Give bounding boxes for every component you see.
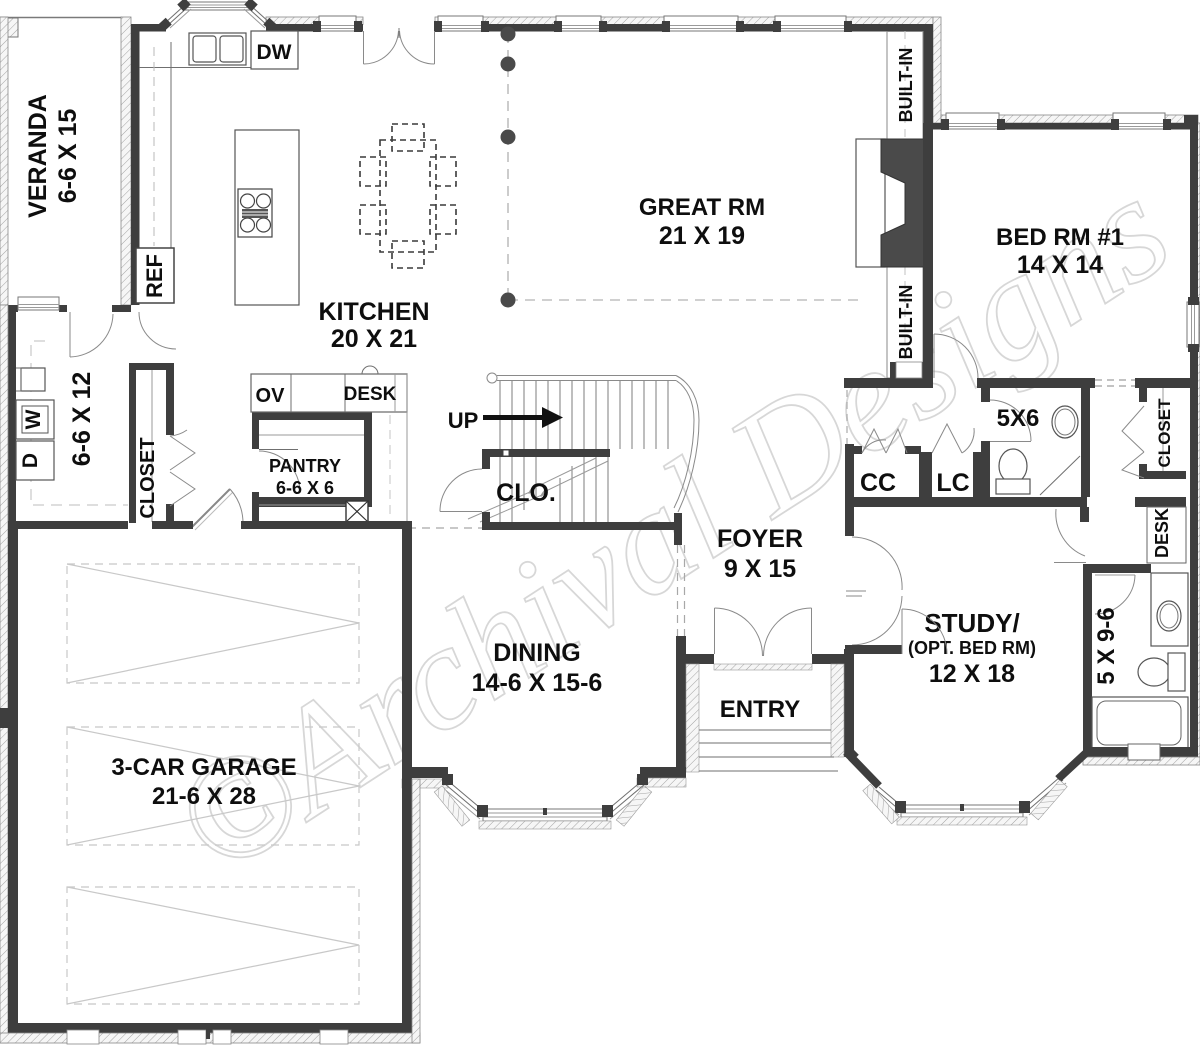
svg-text:BUILT-IN: BUILT-IN <box>896 48 916 123</box>
svg-text:DW: DW <box>257 41 292 64</box>
svg-text:D: D <box>19 453 42 468</box>
svg-text:5 X 9-6: 5 X 9-6 <box>1093 607 1120 684</box>
svg-text:14-6 X 15-6: 14-6 X 15-6 <box>472 669 603 697</box>
svg-text:20 X 21: 20 X 21 <box>331 325 417 353</box>
svg-text:REF: REF <box>142 254 167 298</box>
svg-text:ENTRY: ENTRY <box>720 696 800 723</box>
svg-text:W: W <box>22 409 45 429</box>
svg-text:CC: CC <box>860 469 896 497</box>
svg-text:BUILT-IN: BUILT-IN <box>896 285 916 360</box>
svg-text:OV: OV <box>256 385 286 407</box>
svg-text:GREAT RM: GREAT RM <box>639 194 765 221</box>
svg-text:CLOSET: CLOSET <box>137 437 159 518</box>
svg-text:DESK: DESK <box>1152 508 1172 558</box>
svg-text:FOYER: FOYER <box>717 525 803 553</box>
svg-text:3-CAR GARAGE: 3-CAR GARAGE <box>111 754 296 781</box>
svg-text:STUDY/: STUDY/ <box>924 608 1019 638</box>
svg-text:LC: LC <box>936 469 969 497</box>
svg-text:KITCHEN: KITCHEN <box>318 298 429 326</box>
svg-text:DESK: DESK <box>344 384 397 405</box>
svg-text:9 X 15: 9 X 15 <box>724 555 796 583</box>
svg-text:14 X 14: 14 X 14 <box>1017 251 1103 279</box>
svg-text:6-6 X 6: 6-6 X 6 <box>276 478 334 498</box>
svg-text:VERANDA: VERANDA <box>24 94 52 218</box>
svg-text:21-6 X 28: 21-6 X 28 <box>152 783 256 810</box>
svg-text:(OPT. BED RM): (OPT. BED RM) <box>908 638 1036 658</box>
svg-text:CLOSET: CLOSET <box>1155 398 1174 468</box>
svg-text:BED RM #1: BED RM #1 <box>996 224 1124 251</box>
svg-text:PANTRY: PANTRY <box>269 456 341 476</box>
svg-text:6-6 X 15: 6-6 X 15 <box>54 109 82 204</box>
svg-text:CLO.: CLO. <box>496 479 556 507</box>
svg-text:12 X 18: 12 X 18 <box>929 660 1015 688</box>
svg-text:21 X 19: 21 X 19 <box>659 222 745 250</box>
svg-text:6-6 X 12: 6-6 X 12 <box>68 372 96 467</box>
svg-text:DINING: DINING <box>493 639 581 667</box>
svg-text:UP: UP <box>448 408 479 433</box>
svg-text:5X6: 5X6 <box>997 405 1040 432</box>
